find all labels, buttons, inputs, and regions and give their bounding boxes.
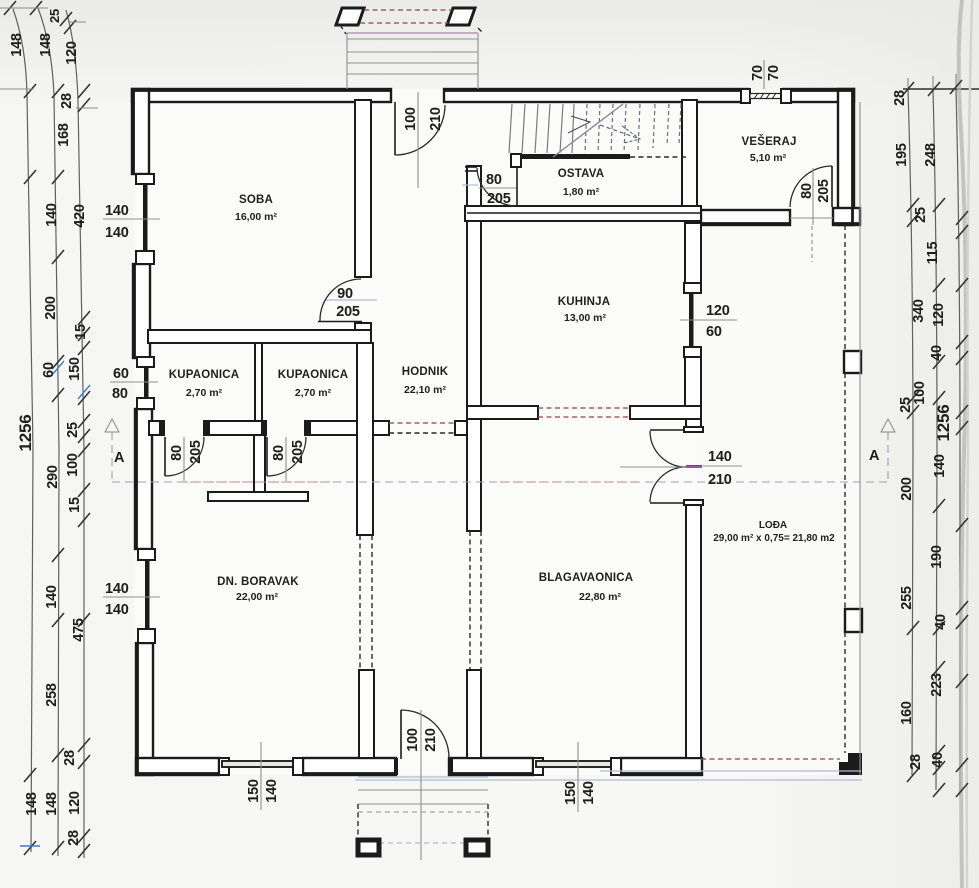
svg-text:A: A [114,450,125,466]
svg-text:60: 60 [41,362,57,378]
svg-text:160: 160 [899,701,915,725]
svg-text:120: 120 [931,303,947,327]
svg-text:148: 148 [44,792,60,816]
svg-text:80: 80 [486,172,502,188]
svg-text:1256: 1256 [16,414,35,451]
svg-text:2,70 m²: 2,70 m² [186,387,223,399]
svg-text:BLAGAVAONICA: BLAGAVAONICA [539,572,634,584]
svg-text:15: 15 [73,324,89,340]
svg-text:22,00 m²: 22,00 m² [236,591,279,603]
svg-text:29,00 m² x 0,75= 21,80 m2: 29,00 m² x 0,75= 21,80 m2 [713,533,835,544]
svg-text:150: 150 [246,779,262,803]
svg-text:80: 80 [112,386,128,402]
svg-text:100: 100 [65,453,81,477]
svg-text:100: 100 [912,381,928,405]
svg-text:1,80 m²: 1,80 m² [563,186,600,198]
svg-text:70: 70 [766,65,782,81]
svg-text:15: 15 [67,497,83,513]
svg-text:SOBA: SOBA [239,194,273,206]
svg-text:248: 248 [923,143,939,167]
svg-text:140: 140 [105,203,129,219]
svg-text:13,00 m²: 13,00 m² [564,312,607,324]
svg-text:LOĐA: LOĐA [759,520,787,531]
svg-text:22,80 m²: 22,80 m² [579,591,622,603]
svg-text:210: 210 [423,728,439,752]
svg-text:120: 120 [706,303,730,319]
svg-text:80: 80 [799,183,815,199]
svg-text:40: 40 [929,345,945,361]
svg-text:205: 205 [816,179,832,203]
svg-text:2,70 m²: 2,70 m² [295,387,332,399]
svg-text:140: 140 [105,225,129,241]
svg-text:25: 25 [65,422,81,438]
svg-text:A: A [869,448,880,464]
svg-text:205: 205 [188,440,204,464]
svg-text:140: 140 [105,602,129,618]
svg-text:60: 60 [706,324,722,340]
svg-text:140: 140 [105,581,129,597]
svg-text:340: 340 [911,299,927,323]
svg-text:DN. BORAVAK: DN. BORAVAK [217,576,299,588]
svg-text:140: 140 [44,585,60,609]
svg-text:205: 205 [487,191,511,207]
svg-text:28: 28 [62,750,78,766]
svg-text:140: 140 [581,781,597,805]
svg-text:140: 140 [264,779,280,803]
svg-text:190: 190 [929,545,945,569]
svg-text:HODNIK: HODNIK [402,366,449,378]
svg-text:255: 255 [899,586,915,610]
svg-text:VEŠERAJ: VEŠERAJ [741,135,796,148]
svg-text:140: 140 [44,203,60,227]
svg-text:KUPAONICA: KUPAONICA [278,369,349,381]
svg-text:25: 25 [47,9,62,23]
svg-text:258: 258 [44,683,60,707]
svg-text:70: 70 [750,65,766,81]
svg-text:16,00 m²: 16,00 m² [235,211,278,223]
svg-text:80: 80 [271,445,287,461]
svg-text:148: 148 [38,33,54,57]
svg-text:140: 140 [932,454,948,478]
svg-text:KUHINJA: KUHINJA [558,296,611,308]
svg-text:290: 290 [45,465,61,489]
svg-text:40: 40 [930,752,946,768]
svg-text:100: 100 [405,728,421,752]
svg-text:205: 205 [290,440,306,464]
svg-text:168: 168 [56,123,72,147]
svg-text:28: 28 [908,754,924,770]
svg-text:148: 148 [9,33,25,57]
svg-text:140: 140 [708,449,732,465]
svg-text:OSTAVA: OSTAVA [558,168,605,180]
svg-text:200: 200 [43,296,59,320]
svg-text:1256: 1256 [934,404,953,441]
svg-text:120: 120 [64,41,80,65]
svg-text:25: 25 [898,397,914,413]
svg-text:150: 150 [67,357,83,381]
svg-text:150: 150 [563,781,579,805]
svg-text:40: 40 [933,614,949,630]
svg-text:22,10 m²: 22,10 m² [404,384,447,396]
svg-text:210: 210 [428,107,444,131]
svg-text:115: 115 [925,241,941,264]
svg-text:210: 210 [708,472,732,488]
svg-text:80: 80 [169,445,185,461]
svg-text:60: 60 [113,366,129,382]
svg-text:200: 200 [899,477,915,501]
svg-text:195: 195 [894,143,910,167]
svg-text:28: 28 [59,93,75,109]
svg-text:90: 90 [337,286,353,302]
svg-text:120: 120 [67,791,83,815]
svg-text:475: 475 [71,618,87,642]
svg-text:25: 25 [913,207,929,223]
svg-text:28: 28 [66,830,82,846]
svg-text:KUPAONICA: KUPAONICA [169,369,240,381]
svg-text:420: 420 [72,204,88,228]
svg-text:5,10 m²: 5,10 m² [750,152,787,164]
svg-text:223: 223 [929,673,945,697]
svg-text:28: 28 [892,90,908,106]
svg-text:100: 100 [403,107,419,131]
svg-text:148: 148 [24,792,40,816]
svg-text:205: 205 [336,304,360,320]
